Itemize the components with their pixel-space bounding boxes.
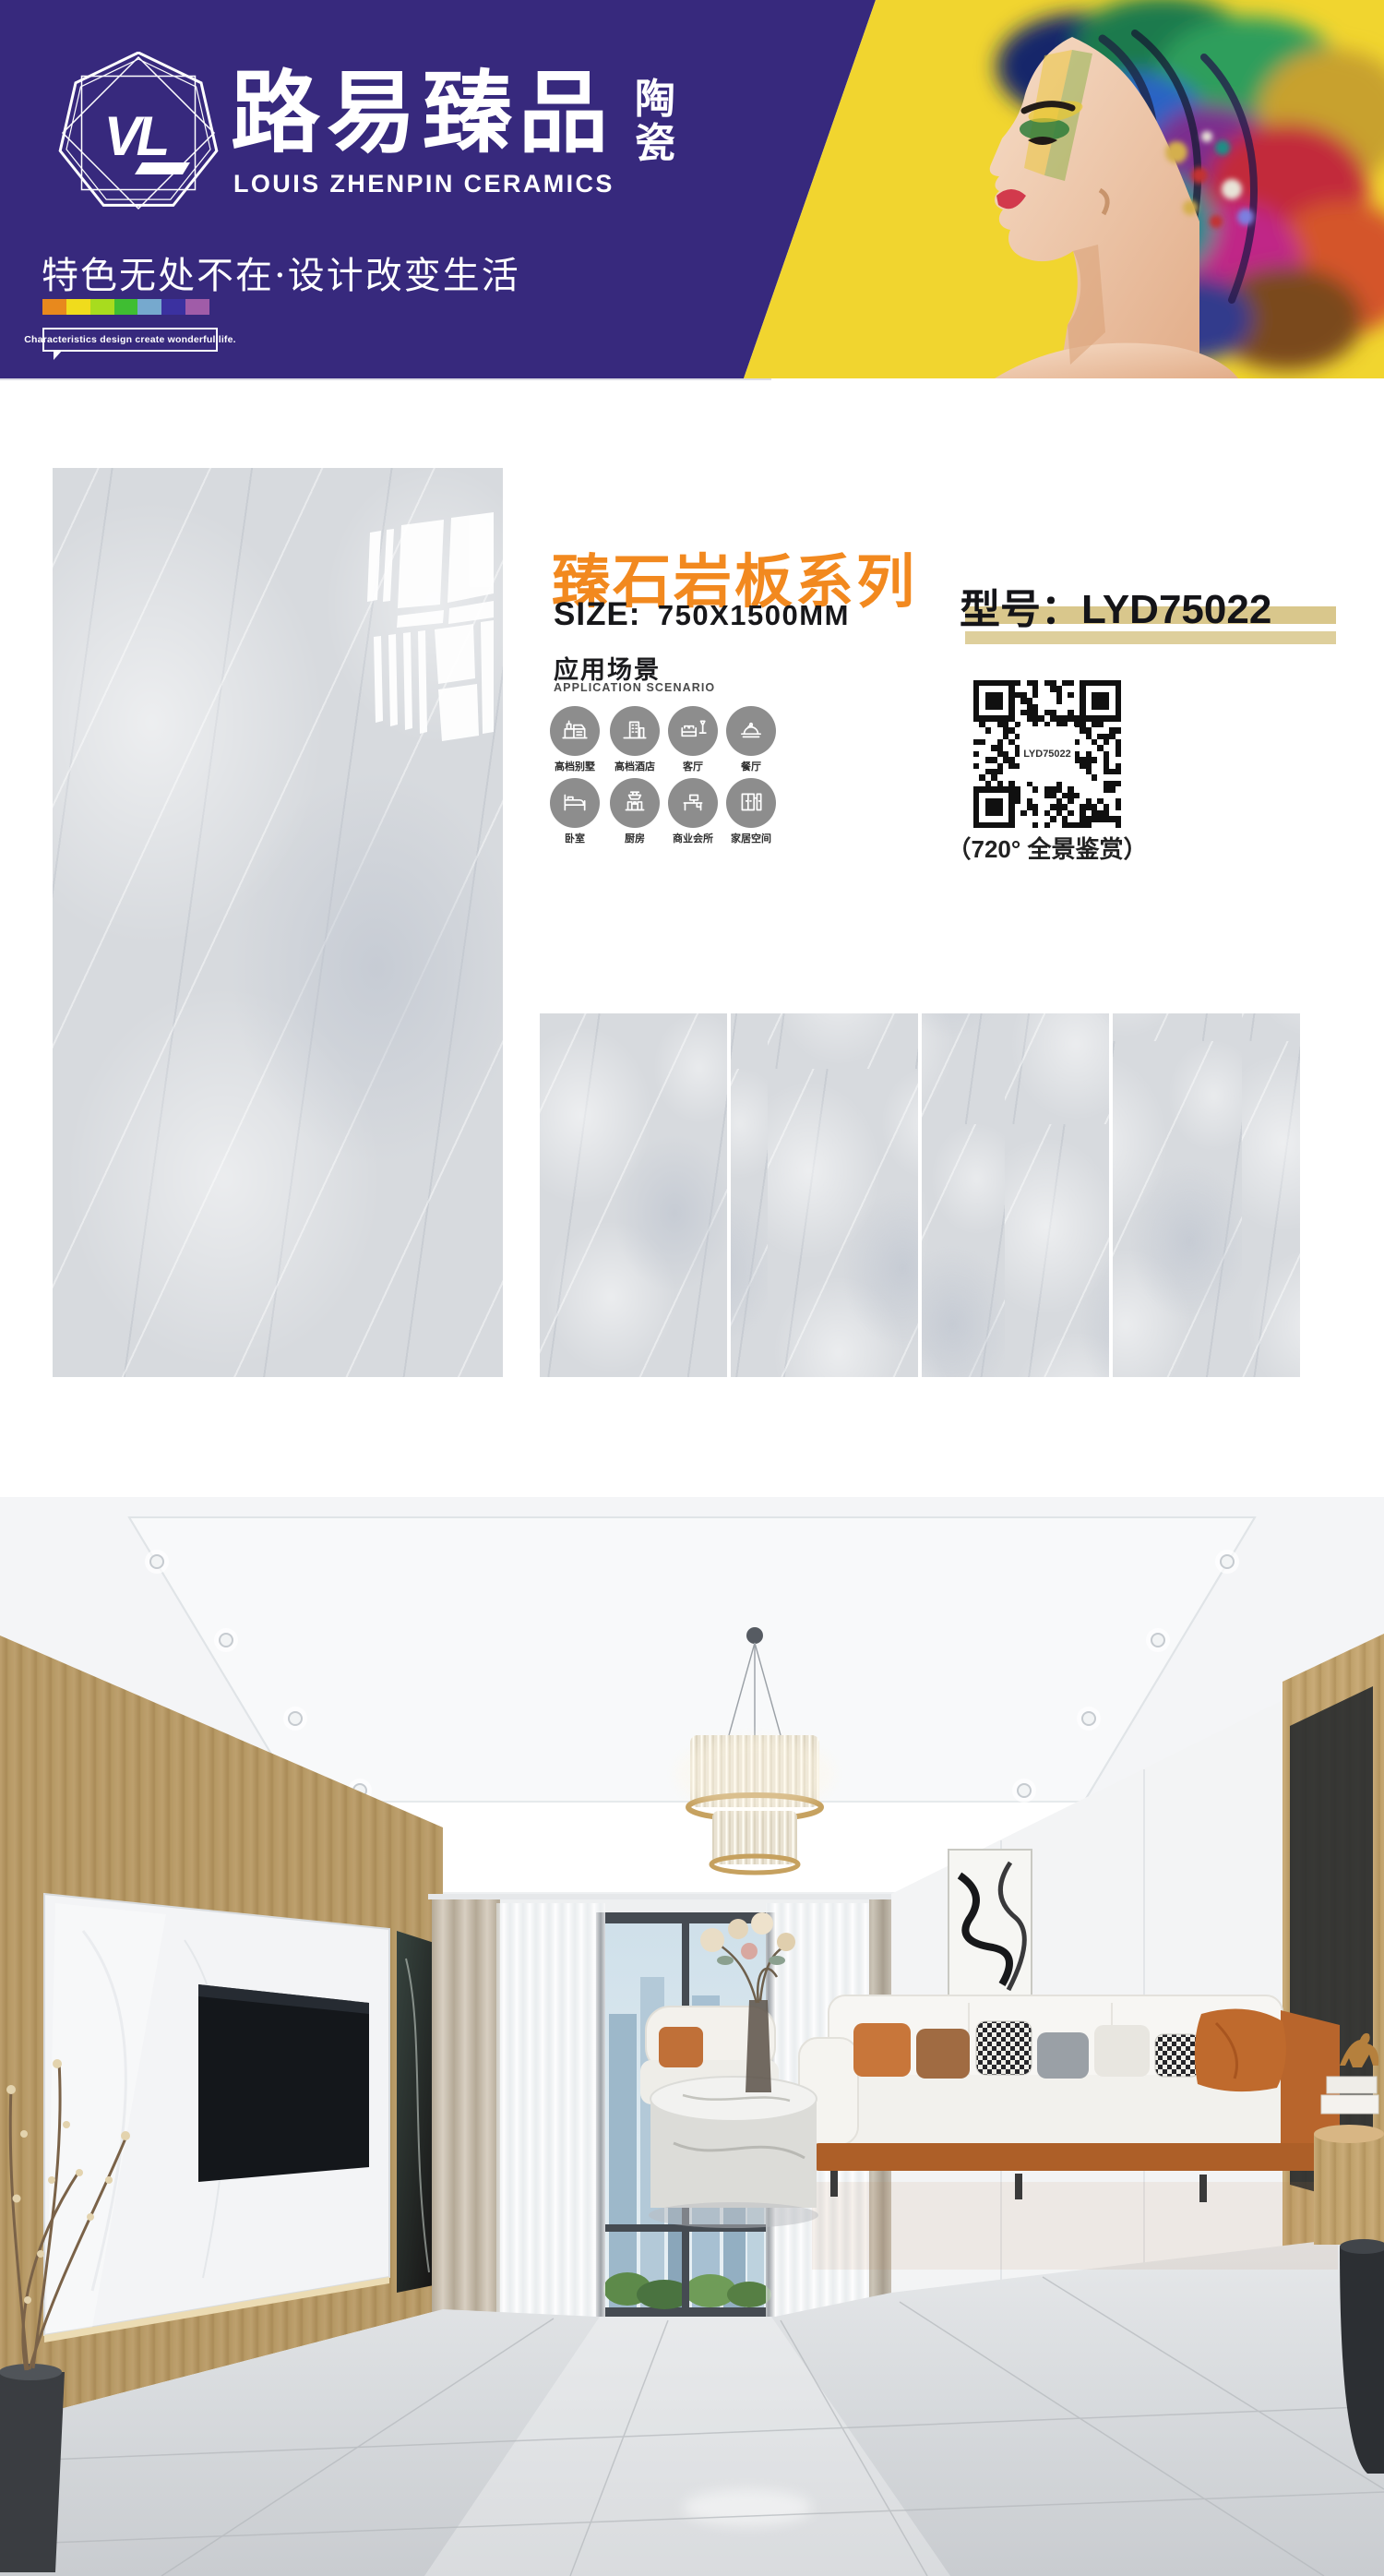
living-room-icon: [668, 706, 718, 756]
catalog-page: VL 路易臻品 陶 瓷 LOUIS ZHENPIN CERAMICS 特色无处不…: [0, 0, 1384, 2576]
scenario-kitchen: 厨房: [603, 778, 667, 845]
room-scene-photo: [0, 1497, 1384, 2576]
scenario-hotel: 高档酒店: [603, 706, 667, 773]
tile-panel-1: [540, 1013, 727, 1377]
scenario-living-room: 客厅: [661, 706, 725, 773]
scenario-bedroom: 卧室: [543, 778, 607, 845]
sofa-reflection: [812, 2182, 1338, 2270]
qr-caption: （720° 全景鉴赏）: [932, 831, 1163, 865]
header-divider: [0, 378, 771, 380]
coffee-table: [649, 2077, 818, 2228]
slogan-english-box: Characteristics design create wonderful …: [42, 328, 218, 352]
brand-suffix-bottom: 瓷: [635, 122, 675, 166]
bedroom-icon: [550, 778, 600, 828]
model-number: 型号：LYD75022: [960, 576, 1271, 635]
qr-center-label: LYD75022: [1020, 726, 1075, 782]
brand-name-english: LOUIS ZHENPIN CERAMICS: [233, 170, 614, 198]
sheer-left: [496, 1903, 605, 2342]
model-portrait-art: [766, 0, 1384, 378]
brand-header: VL 路易臻品 陶 瓷 LOUIS ZHENPIN CERAMICS 特色无处不…: [0, 0, 1384, 378]
dining-room-icon: [726, 706, 776, 756]
brand-name-chinese: 路易臻品: [231, 68, 614, 158]
rainbow-color-bar: [42, 299, 209, 315]
scenario-commercial-club: 商业会所: [661, 778, 725, 845]
scenario-dining-room: 餐厅: [719, 706, 783, 773]
tile-panel-4: [1113, 1013, 1300, 1377]
scenario-villa: 高档别墅: [543, 706, 607, 773]
scenario-home-space: 家居空间: [719, 778, 783, 845]
tile-swatch-large: [53, 468, 503, 1377]
abstract-artwork: [949, 1850, 1032, 2007]
logo-monogram: VL: [104, 105, 168, 167]
tile-panel-2: [731, 1013, 918, 1377]
hotel-icon: [610, 706, 660, 756]
home-space-icon: [726, 778, 776, 828]
size-label: SIZE:: [554, 596, 640, 632]
tile-panel-3: [922, 1013, 1109, 1377]
drape-left: [432, 1899, 500, 2333]
villa-icon: [550, 706, 600, 756]
commercial-club-icon: [668, 778, 718, 828]
kitchen-icon: [610, 778, 660, 828]
brand-suffix-taoci: 陶 瓷: [635, 78, 675, 166]
application-scenario-subtitle: APPLICATION SCENARIO: [554, 681, 715, 694]
tv-screen: [198, 1984, 369, 2182]
brand-suffix-top: 陶: [635, 78, 675, 122]
slogan-chinese: 特色无处不在·设计改变生活: [42, 246, 520, 299]
window-reflection-highlight: [363, 512, 501, 743]
size-line: SIZE: 750X1500MM: [554, 596, 850, 633]
sofa-leather-base: [812, 2143, 1338, 2171]
size-value: 750X1500MM: [658, 599, 850, 631]
logo-underline: [135, 162, 190, 174]
slogan-box-tail: [54, 350, 63, 360]
brand-logo: VL: [57, 52, 220, 214]
orange-throw: [1195, 2009, 1286, 2092]
qr-code: LYD75022: [973, 680, 1121, 828]
tv-feature-wall: [44, 1894, 389, 2342]
curtain-rod: [428, 1894, 937, 1899]
model-line: 型号：LYD75022: [960, 576, 1347, 650]
